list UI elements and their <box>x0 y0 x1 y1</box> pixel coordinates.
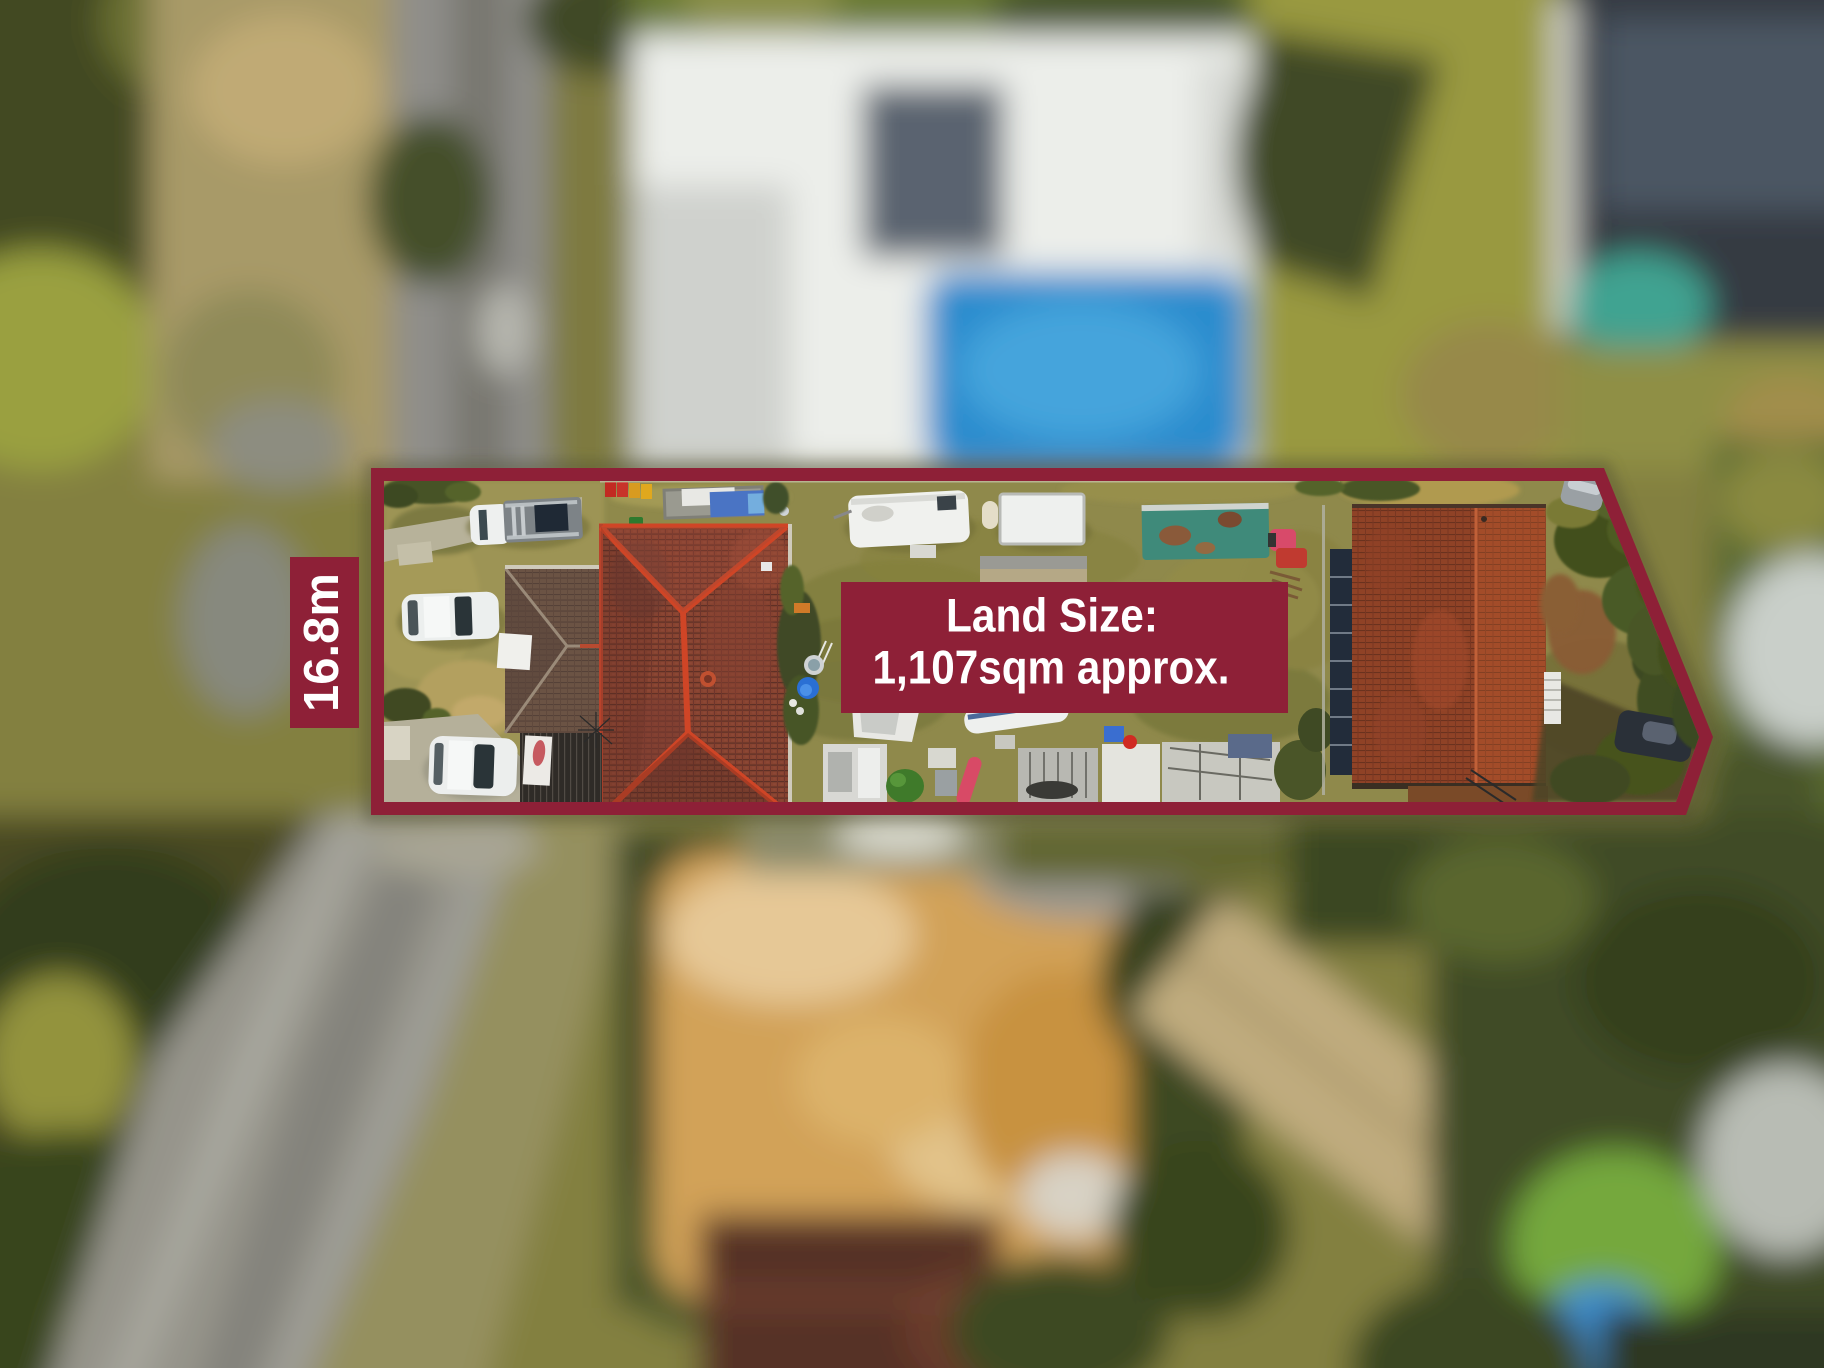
svg-text:Land Size:: Land Size: <box>946 589 1158 642</box>
svg-text:1,107sqm approx.: 1,107sqm approx. <box>873 641 1230 694</box>
svg-text:16.8m: 16.8m <box>295 573 349 712</box>
